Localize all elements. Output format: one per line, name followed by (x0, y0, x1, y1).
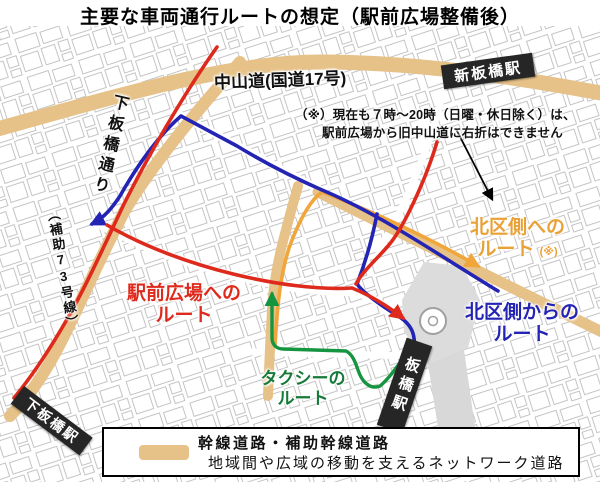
legend-description: 地域間や広域の移動を支えるネットワーク道路 (208, 452, 565, 473)
route-label-from-kita: 北区側からの ルート (452, 302, 592, 346)
page-title: 主要な車両通行ルートの想定（駅前広場整備後） (0, 2, 600, 29)
legend-box: 幹線道路・補助幹線道路 地域間や広域の移動を支えるネットワーク道路 (102, 427, 580, 477)
route-label-taxi-line1: タクシーの (248, 369, 358, 389)
route-label-from-kita-line2: ルート (452, 324, 592, 346)
route-label-to-kita-line2-text: ルート (477, 239, 534, 260)
route-label-to-plaza-line1: 駅前広場への (118, 283, 250, 305)
restriction-note-line1: （※）現在も７時～20時（日曜・休日除く）は、 (295, 104, 576, 123)
restriction-note-line2: 駅前広場から旧中山道に右折はできません (322, 122, 563, 141)
route-label-from-kita-line1: 北区側からの (452, 302, 592, 324)
route-map-figure: 主要な車両通行ルートの想定（駅前広場整備後） 中山道(国道17号) （※）現在も… (0, 0, 600, 500)
nakasendo-road-label: 中山道(国道17号) (214, 64, 347, 94)
route-label-to-kita-note-mark: (※) (540, 246, 558, 258)
legend-road-swatch (138, 444, 190, 461)
route-label-to-kita: 北区側への ルート (※) (455, 217, 580, 261)
route-label-taxi-line2: ルート (248, 389, 358, 409)
legend-road-swatch-rect (139, 445, 189, 460)
legend-title: 幹線道路・補助幹線道路 (198, 432, 391, 453)
route-label-taxi: タクシーの ルート (248, 369, 358, 408)
route-label-to-kita-line2: ルート (※) (455, 239, 580, 261)
route-label-to-kita-line1: 北区側への (455, 217, 580, 239)
route-label-to-plaza: 駅前広場への ルート (118, 283, 250, 327)
plaza-roundabout-center (429, 317, 438, 326)
route-label-to-plaza-line2: ルート (118, 305, 250, 327)
